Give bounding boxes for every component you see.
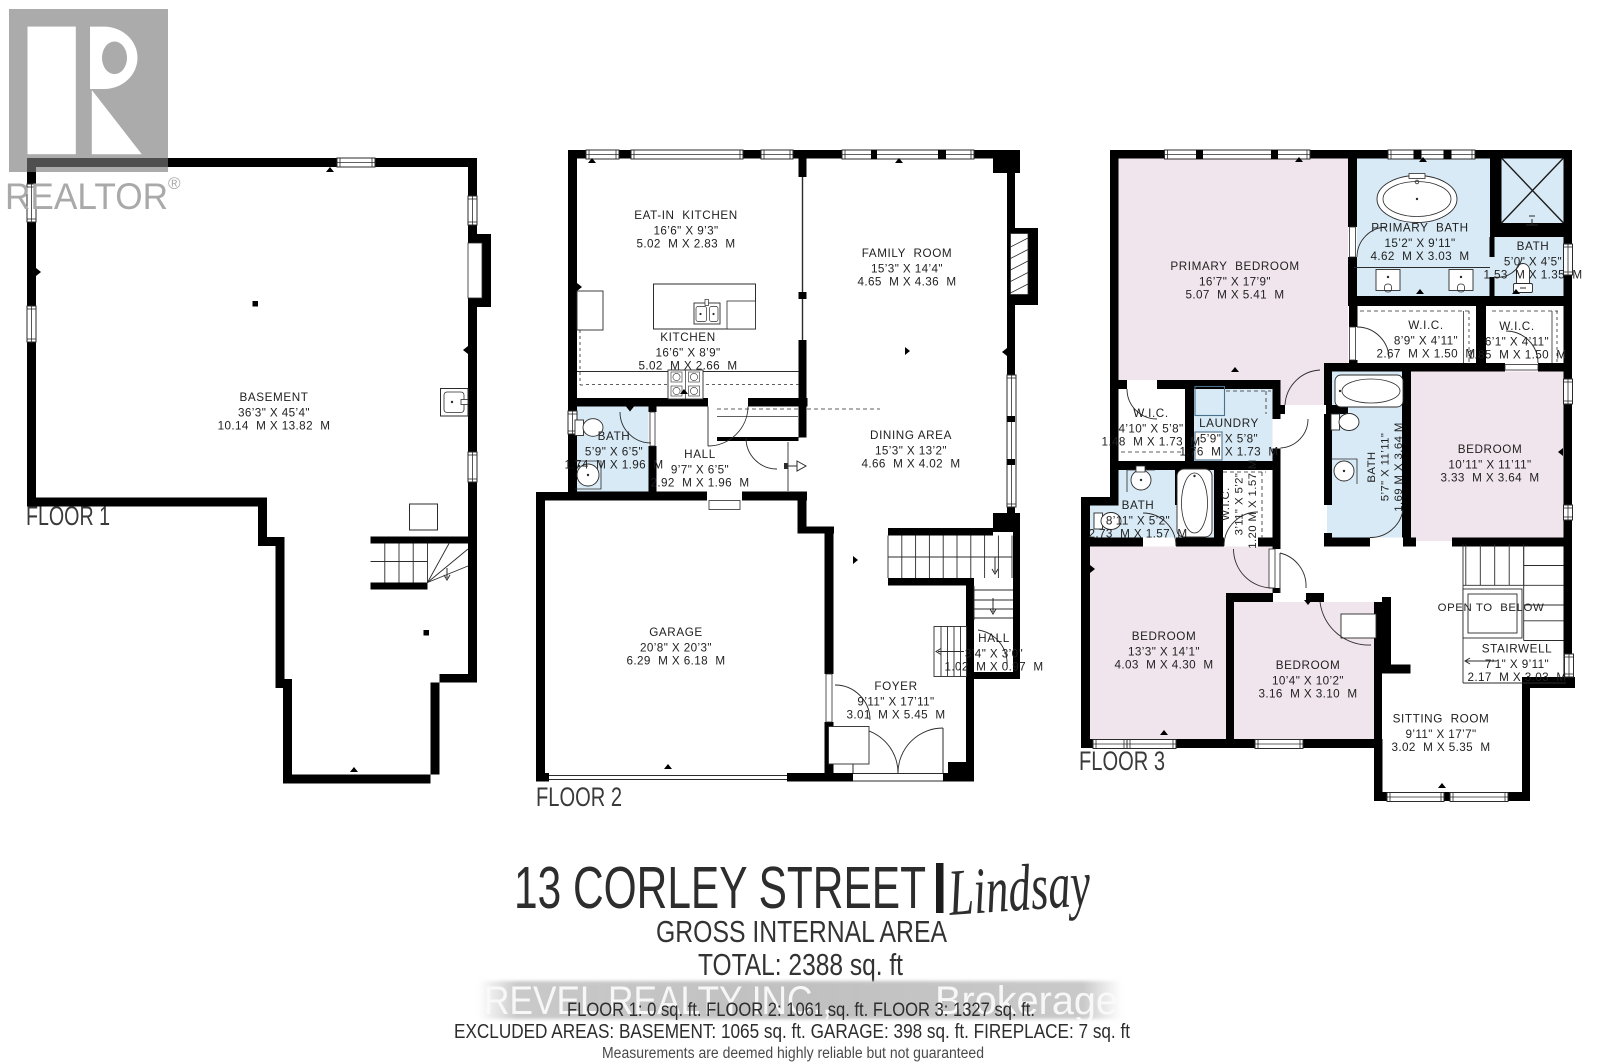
svg-text:10.14 M X 13.82 M: 10.14 M X 13.82 M [218, 420, 331, 433]
svg-text:BASEMENT: BASEMENT [239, 391, 308, 404]
svg-text:9’11" X 17’11": 9’11" X 17’11" [857, 696, 934, 709]
svg-text:FOYER: FOYER [874, 680, 917, 693]
svg-text:3.16 M X 3.10 M: 3.16 M X 3.10 M [1258, 688, 1357, 701]
svg-text:LAUNDRY: LAUNDRY [1199, 417, 1259, 430]
svg-text:5’9" X 6’5": 5’9" X 6’5" [585, 446, 643, 459]
svg-text:16’6" X 9’3": 16’6" X 9’3" [653, 225, 718, 238]
svg-text:16’7" X 17’9": 16’7" X 17’9" [1199, 276, 1271, 289]
svg-text:8’9" X 4’11": 8’9" X 4’11" [1394, 335, 1458, 348]
svg-text:20’8" X 20’3": 20’8" X 20’3" [640, 642, 712, 655]
svg-text:8’11" X 5’2": 8’11" X 5’2" [1106, 515, 1170, 528]
svg-text:2.73 M X 1.57 M: 2.73 M X 1.57 M [1088, 528, 1187, 541]
svg-text:Lindsay: Lindsay [945, 847, 1093, 930]
svg-text:15’3" X 13’2": 15’3" X 13’2" [875, 445, 947, 458]
svg-text:2.17 M X 3.03 M: 2.17 M X 3.03 M [1467, 671, 1566, 684]
svg-text:4.66 M X 4.02 M: 4.66 M X 4.02 M [861, 458, 960, 471]
svg-text:FLOOR 2: FLOOR 2 [536, 782, 622, 812]
svg-text:4.65 M X 4.36 M: 4.65 M X 4.36 M [857, 276, 956, 289]
svg-text:W.I.C.: W.I.C. [1408, 319, 1443, 332]
svg-text:3’4" X 3’0": 3’4" X 3’0" [965, 648, 1023, 661]
svg-text:5’9" X 5’8": 5’9" X 5’8" [1200, 433, 1258, 446]
svg-text:Measurements are deemed highly: Measurements are deemed highly reliable … [602, 1045, 984, 1062]
svg-text:STAIRWELL: STAIRWELL [1482, 643, 1553, 656]
svg-text:OPEN TO BELOW: OPEN TO BELOW [1438, 602, 1545, 614]
svg-text:HALL: HALL [978, 632, 1010, 645]
svg-text:1.69 M X 3.64 M: 1.69 M X 3.64 M [1393, 422, 1405, 512]
svg-text:TOTAL: 2388 sq. ft: TOTAL: 2388 sq. ft [698, 947, 903, 982]
svg-text:REALTOR: REALTOR [5, 176, 168, 217]
svg-text:HALL: HALL [684, 448, 716, 461]
svg-text:1.02 M X 0.97 M: 1.02 M X 0.97 M [944, 661, 1043, 674]
svg-text:15’2" X 9’11": 15’2" X 9’11" [1384, 237, 1455, 250]
svg-text:BATH: BATH [1122, 499, 1155, 512]
svg-text:6.29 M X 6.18 M: 6.29 M X 6.18 M [626, 655, 725, 668]
svg-text:13 CORLEY STREET: 13 CORLEY STREET [514, 855, 926, 921]
svg-text:3.33 M X 3.64 M: 3.33 M X 3.64 M [1440, 472, 1539, 485]
svg-text:10’11" X 11’11": 10’11" X 11’11" [1448, 459, 1531, 472]
svg-text:5.07 M X 5.41 M: 5.07 M X 5.41 M [1185, 289, 1284, 302]
svg-text:4.62 M X 3.03 M: 4.62 M X 3.03 M [1370, 250, 1469, 263]
svg-text:13’3" X 14’1": 13’3" X 14’1" [1128, 646, 1200, 659]
svg-text:GROSS INTERNAL AREA: GROSS INTERNAL AREA [656, 914, 947, 949]
svg-text:1.74 M X 1.96 M: 1.74 M X 1.96 M [564, 459, 663, 472]
svg-text:4.03 M X 4.30 M: 4.03 M X 4.30 M [1114, 659, 1213, 672]
svg-text:4’10" X 5’8": 4’10" X 5’8" [1118, 423, 1183, 436]
svg-text:BATH: BATH [1517, 240, 1550, 253]
svg-text:PRIMARY BEDROOM: PRIMARY BEDROOM [1170, 260, 1299, 273]
svg-text:PRIMARY BATH: PRIMARY BATH [1371, 222, 1468, 235]
svg-text:7’1" X 9’11": 7’1" X 9’11" [1485, 658, 1549, 671]
svg-text:KITCHEN: KITCHEN [660, 331, 716, 344]
svg-text:1.53 M X 1.35 M: 1.53 M X 1.35 M [1483, 269, 1582, 282]
svg-text:W.I.C.: W.I.C. [1133, 407, 1168, 420]
svg-text:1.20 M X 1.57 M: 1.20 M X 1.57 M [1247, 459, 1259, 549]
svg-text:SITTING ROOM: SITTING ROOM [1393, 713, 1490, 726]
svg-text:W.I.C.: W.I.C. [1220, 487, 1232, 520]
svg-text:BEDROOM: BEDROOM [1458, 443, 1523, 456]
svg-text:FAMILY ROOM: FAMILY ROOM [862, 247, 953, 260]
svg-text:16’6" X 8’9": 16’6" X 8’9" [655, 347, 720, 360]
svg-text:GARAGE: GARAGE [649, 626, 703, 639]
svg-text:36’3" X 45’4": 36’3" X 45’4" [238, 407, 310, 420]
svg-text:1.85 M X 1.50 M: 1.85 M X 1.50 M [1467, 349, 1566, 362]
svg-text:®: ® [168, 174, 181, 193]
svg-text:9’7" X 6’5": 9’7" X 6’5" [671, 464, 729, 477]
svg-text:10’4" X 10’2": 10’4" X 10’2" [1272, 675, 1344, 688]
svg-text:DINING AREA: DINING AREA [870, 429, 952, 442]
svg-text:FLOOR 1: 0 sq. ft. FLOOR 2: 10: FLOOR 1: 0 sq. ft. FLOOR 2: 1061 sq. ft.… [567, 999, 1035, 1021]
svg-text:BATH: BATH [598, 430, 631, 443]
svg-text:5.02 M X 2.66 M: 5.02 M X 2.66 M [638, 360, 737, 373]
svg-text:15’3" X 14’4": 15’3" X 14’4" [871, 263, 943, 276]
svg-text:EAT-IN KITCHEN: EAT-IN KITCHEN [634, 209, 738, 222]
svg-text:5’7" X 11’11": 5’7" X 11’11" [1380, 433, 1392, 502]
svg-text:9’11" X 17’7": 9’11" X 17’7" [1405, 728, 1476, 741]
svg-text:5’0" X 4’5": 5’0" X 4’5" [1504, 256, 1562, 269]
svg-text:BEDROOM: BEDROOM [1276, 659, 1341, 672]
svg-text:5.02 M X 2.83 M: 5.02 M X 2.83 M [636, 238, 735, 251]
svg-text:FLOOR 3: FLOOR 3 [1079, 746, 1165, 776]
svg-text:6’1" X 4’11": 6’1" X 4’11" [1485, 336, 1549, 349]
svg-text:BATH: BATH [1366, 451, 1378, 482]
svg-text:EXCLUDED AREAS: BASEMENT: 1065: EXCLUDED AREAS: BASEMENT: 1065 sq. ft. G… [454, 1020, 1130, 1043]
svg-text:1.76 M X 1.73 M: 1.76 M X 1.73 M [1179, 446, 1278, 459]
svg-text:2.67 M X 1.50 M: 2.67 M X 1.50 M [1376, 348, 1475, 361]
svg-text:3.01 M X 5.45 M: 3.01 M X 5.45 M [846, 709, 945, 722]
svg-text:FLOOR 1: FLOOR 1 [26, 501, 110, 531]
svg-text:3’11" X 5’2": 3’11" X 5’2" [1234, 473, 1246, 536]
svg-text:3.02 M X 5.35 M: 3.02 M X 5.35 M [1391, 741, 1490, 754]
svg-text:BEDROOM: BEDROOM [1132, 630, 1197, 643]
svg-text:W.I.C.: W.I.C. [1499, 320, 1534, 333]
svg-text:2.92 M X 1.96 M: 2.92 M X 1.96 M [650, 477, 749, 490]
